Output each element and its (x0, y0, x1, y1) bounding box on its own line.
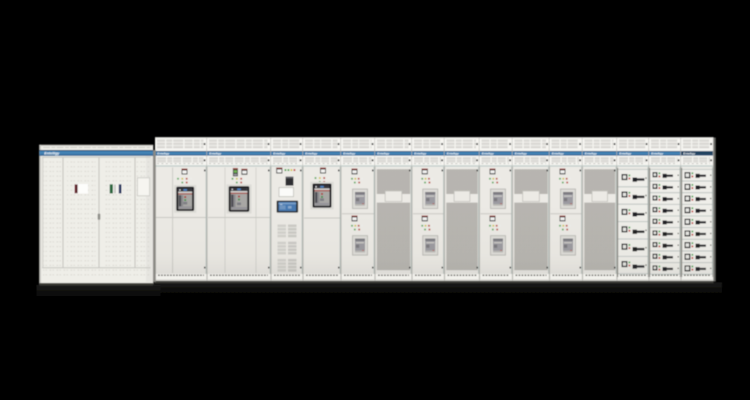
svg-text:Entelligy: Entelligy (377, 151, 389, 155)
svg-text:Entelligy: Entelligy (552, 151, 564, 155)
svg-text:Entelligy: Entelligy (447, 151, 459, 155)
svg-text:Entelligy: Entelligy (343, 151, 355, 155)
svg-text:Entelligy: Entelligy (414, 151, 426, 155)
svg-text:Entelligy: Entelligy (651, 151, 663, 155)
svg-text:Entelligy: Entelligy (585, 151, 597, 155)
svg-text:Entelligy: Entelligy (157, 151, 169, 155)
svg-text:Entelligy: Entelligy (44, 151, 60, 155)
svg-text:Entelligy: Entelligy (619, 151, 631, 155)
svg-text:Entelligy: Entelligy (482, 151, 494, 155)
svg-text:Entelligy: Entelligy (305, 151, 317, 155)
svg-text:Entelligy: Entelligy (209, 151, 221, 155)
svg-text:Entelligy: Entelligy (273, 151, 285, 155)
svg-text:Entelligy: Entelligy (515, 151, 527, 155)
svg-text:Entelligy: Entelligy (683, 151, 695, 155)
